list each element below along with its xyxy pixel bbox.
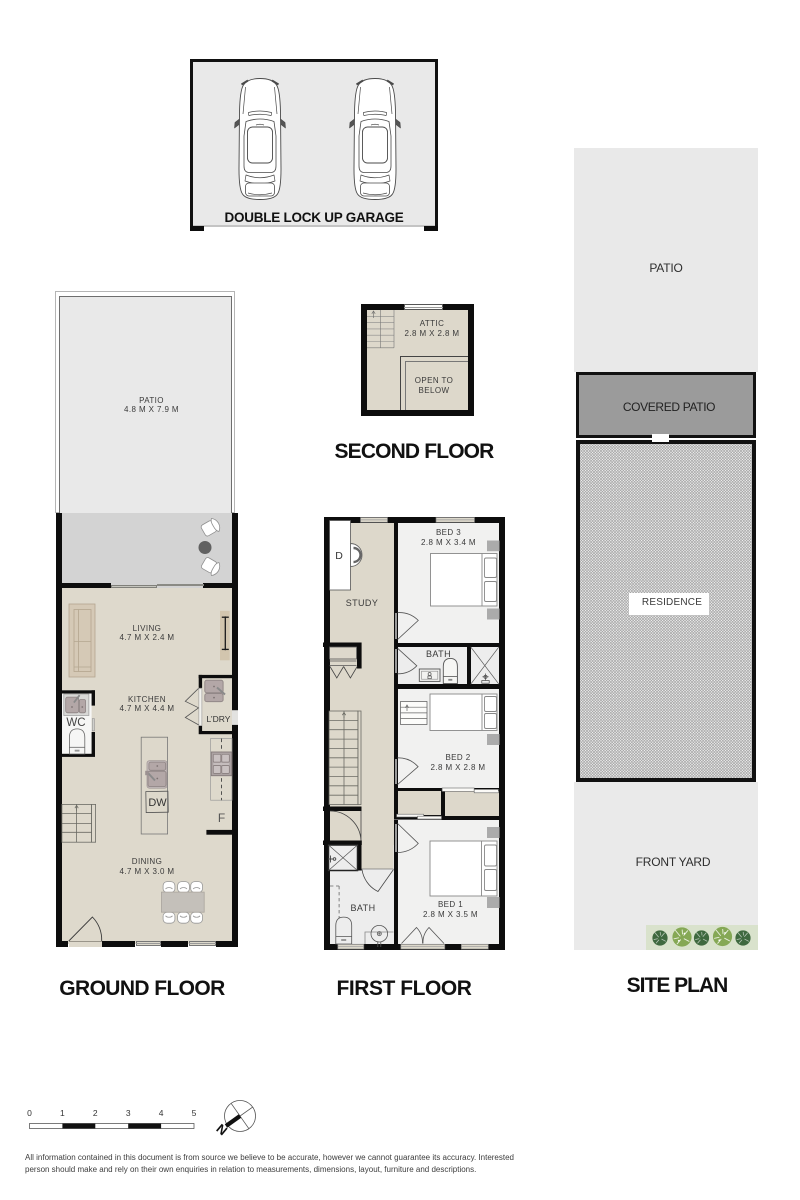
svg-text:4: 4: [159, 1108, 164, 1118]
svg-text:3: 3: [126, 1108, 131, 1118]
svg-text:2: 2: [93, 1108, 98, 1118]
svg-text:5: 5: [192, 1108, 197, 1118]
svg-text:0: 0: [27, 1108, 32, 1118]
svg-text:1: 1: [60, 1108, 65, 1118]
